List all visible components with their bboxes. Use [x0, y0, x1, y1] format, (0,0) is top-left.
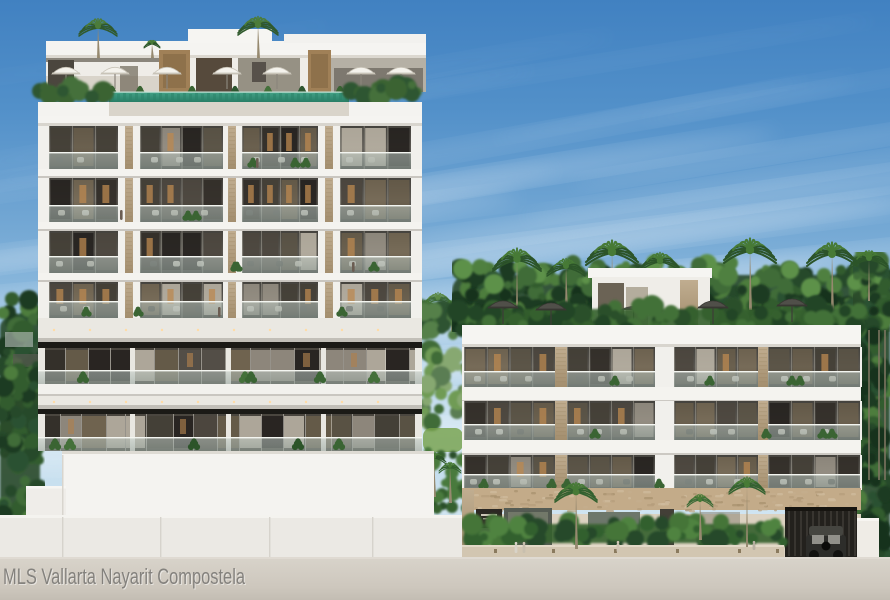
svg-text:MLS Vallarta Nayarit Compostel: MLS Vallarta Nayarit Compostela — [3, 564, 246, 589]
